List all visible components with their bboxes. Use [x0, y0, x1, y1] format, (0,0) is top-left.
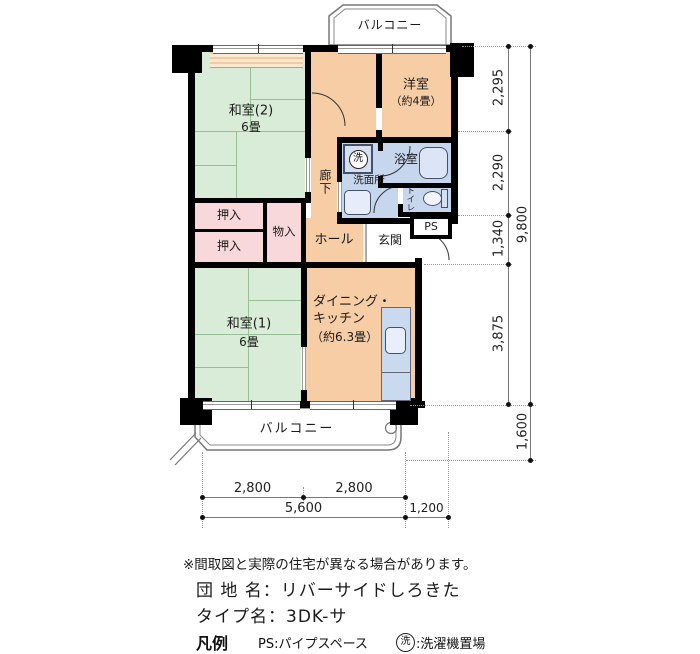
legend-laundry: :洗濯機置場 — [416, 633, 485, 652]
disclaimer-note: ※間取図と実際の住宅が異なる場合があります。 — [183, 558, 476, 574]
wall — [305, 52, 311, 158]
wall — [337, 137, 458, 143]
toilet-label: トイレ — [404, 186, 414, 212]
dim-line — [202, 517, 448, 518]
closet-lower-label: 押入 — [217, 240, 241, 254]
sliding-door-line — [309, 158, 310, 192]
dk-label-line3: （約6.3畳） — [311, 331, 378, 345]
dim-right-1: 2,295 — [492, 53, 507, 123]
washitsu2-size: 6畳 — [241, 121, 261, 135]
wall — [378, 143, 383, 151]
wall — [301, 262, 422, 268]
corridor-label: 廊下 — [317, 169, 331, 195]
dim-bottom-entrance: 1,200 — [403, 501, 450, 515]
sliding-door-line — [302, 347, 303, 390]
dim-extension-line — [462, 46, 536, 47]
dim-dot — [506, 129, 511, 134]
wall — [188, 45, 195, 408]
wall — [337, 137, 342, 182]
window-center-tick — [251, 400, 252, 409]
floor-plan: PS 洗 バルコニー 洋室 （約4畳） 和室(2) 6畳 廊下 洗面所 浴室 ト… — [0, 0, 700, 650]
legend-row: 凡例 PS:パイプスペース 洗 :洗濯機置場 — [196, 630, 485, 654]
entrance-label: 玄関 — [378, 234, 402, 248]
pillar — [450, 43, 474, 77]
dim-extension-line — [458, 131, 512, 132]
dim-dot — [446, 515, 451, 520]
toilet-bowl-icon — [423, 191, 442, 206]
sliding-door-line — [306, 158, 307, 192]
dim-dot — [528, 44, 533, 49]
sliding-door-line — [341, 182, 342, 212]
entrance-step-line — [365, 224, 367, 262]
bathtub-icon — [419, 147, 448, 179]
dk-label-line2: キッチン — [313, 313, 365, 328]
wall — [376, 52, 382, 108]
dim-dot — [506, 262, 511, 267]
washitsu1-label: 和室(1) — [227, 318, 271, 333]
western-room-label: 洋室 — [403, 79, 429, 94]
storage-label: 物入 — [273, 225, 296, 238]
estate-name: 団 地 名：リバーサイドしろきた — [196, 582, 460, 602]
dim-dot — [506, 44, 511, 49]
washbasin-icon — [344, 190, 371, 215]
legend-title: 凡例 — [196, 630, 228, 654]
dim-right-balcony: 1,600 — [516, 397, 531, 467]
window-center-tick — [353, 400, 354, 409]
pillar — [172, 45, 202, 73]
wall — [301, 390, 307, 401]
dim-right-4: 3,875 — [492, 299, 507, 369]
closet-upper-label: 押入 — [217, 209, 241, 223]
kitchen-counter — [381, 307, 411, 401]
kitchen-counter-divider — [381, 372, 411, 373]
window-center-tick — [258, 44, 259, 53]
ps-label: PS — [424, 221, 438, 234]
wall — [376, 130, 382, 143]
wall — [337, 212, 342, 218]
washing-machine-box: 洗 — [343, 144, 373, 174]
wall — [415, 258, 422, 408]
window-center-tick — [392, 44, 393, 53]
dim-dot — [506, 402, 511, 407]
toilet-door-arc — [374, 186, 401, 213]
kitchen-sink-icon — [385, 327, 406, 354]
wall — [301, 198, 306, 267]
dim-bottom-2: 2,800 — [303, 481, 405, 496]
wall — [195, 229, 265, 232]
dk-label-line1: ダイニング・ — [313, 296, 391, 311]
dim-bottom-1: 2,800 — [202, 481, 303, 496]
wall — [378, 183, 458, 188]
hall-label: ホール — [314, 234, 353, 249]
dim-dot — [506, 213, 511, 218]
wall — [195, 262, 311, 268]
legend-ps: PS:パイプスペース — [258, 633, 368, 652]
wall — [195, 198, 311, 203]
washitsu1-size: 6畳 — [239, 336, 259, 350]
dim-right-3: 1,340 — [492, 204, 507, 274]
laundry-mark-icon: 洗 — [349, 150, 368, 169]
pipe-space-box: PS — [410, 215, 452, 239]
type-name: タイプ名：3DK-サ — [196, 608, 347, 628]
toilet-tank-icon — [441, 189, 448, 208]
western-room-size: （約4畳） — [391, 96, 442, 109]
legend-laundry-mark-icon: 洗 — [396, 633, 415, 652]
balcony-bottom-label: バルコニー — [260, 423, 335, 438]
dim-right-2: 2,290 — [492, 138, 507, 208]
dim-right-total: 9,800 — [516, 190, 531, 260]
sliding-door-line — [305, 347, 306, 390]
wall — [301, 267, 307, 347]
balcony-top-label: バルコニー — [358, 19, 423, 33]
dim-bottom-total: 5,600 — [202, 501, 405, 516]
western-room-door-arc — [312, 93, 345, 126]
sliding-door-line — [338, 182, 339, 212]
washitsu2-label: 和室(2) — [229, 105, 273, 120]
dim-line — [508, 46, 509, 404]
bathroom-label: 浴室 — [394, 153, 418, 167]
washroom-label: 洗面所 — [353, 174, 385, 186]
wall — [263, 198, 267, 265]
